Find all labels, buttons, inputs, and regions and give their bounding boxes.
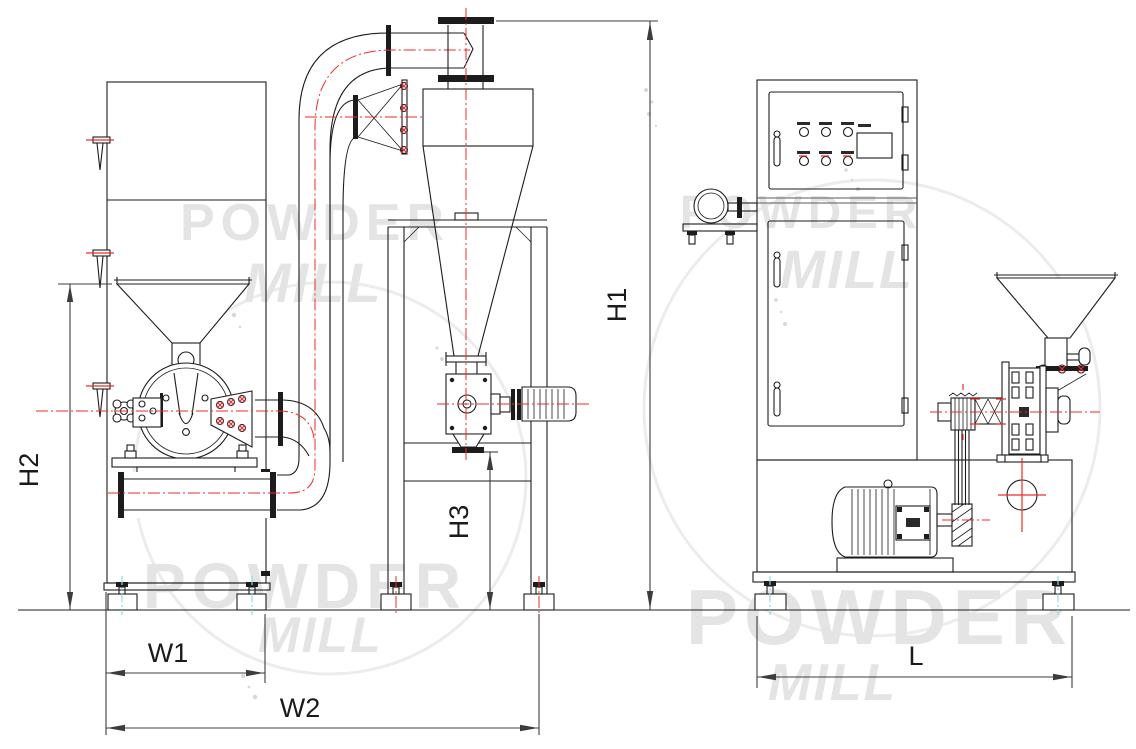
motor-plinth <box>837 558 953 572</box>
technical-drawing: POWDER MILL POWDER MILL POWDER MILL POWD… <box>0 0 1136 749</box>
clamp-flange <box>737 197 742 218</box>
feed-hopper-side <box>997 278 1115 338</box>
dimension-label-h3: H3 <box>444 505 474 540</box>
feed-chute <box>1045 338 1067 367</box>
dimension-label-h2: H2 <box>14 453 44 488</box>
flange <box>118 472 124 518</box>
door-cap <box>1058 396 1070 424</box>
grinding-head-section <box>1002 362 1070 458</box>
side-bolt <box>261 571 270 576</box>
discharge-channel <box>118 472 276 518</box>
flange <box>270 472 276 518</box>
dimension-label-w2: W2 <box>280 693 321 723</box>
frame-foot <box>524 576 554 615</box>
dimension-label-w1: W1 <box>148 638 189 668</box>
watermark-text: MILL <box>244 251 383 314</box>
feed-hopper <box>117 284 249 343</box>
motor-pulley <box>952 504 972 546</box>
slide-rails <box>112 458 257 467</box>
dimension-label-l: L <box>908 641 923 671</box>
hinge <box>902 398 908 413</box>
outlet-flange <box>452 447 484 453</box>
panel-door <box>769 92 903 189</box>
cyclone-assembly <box>381 8 590 615</box>
leveling-foot <box>108 576 137 615</box>
door-clamp-handle <box>86 137 114 170</box>
door-clamp-handle <box>86 383 114 417</box>
panel-button[interactable] <box>822 128 831 137</box>
panel-display <box>857 133 892 158</box>
panel-button[interactable] <box>800 128 809 137</box>
cyclone-cone <box>478 146 533 356</box>
nameplate <box>906 518 920 527</box>
watermark-text: MILL <box>258 607 383 663</box>
door-handle <box>774 382 780 416</box>
electric-motor <box>832 480 990 557</box>
valve-outlet <box>453 434 484 447</box>
spring-mount <box>237 445 248 458</box>
panel-button-label-marks <box>797 122 871 156</box>
panel-buttons <box>797 122 892 166</box>
panel-button[interactable] <box>844 128 853 137</box>
mill-pedestal <box>1005 455 1041 462</box>
dimension-label-h1: H1 <box>602 288 632 323</box>
panel-button[interactable] <box>844 157 853 166</box>
pipe-section <box>694 189 728 223</box>
watermark-text: MILL <box>768 654 897 712</box>
mill-door <box>1046 388 1058 432</box>
bearing-plate <box>133 398 161 427</box>
watermark-text: POWDER <box>686 573 1073 661</box>
watermark-text: MILL <box>780 240 914 300</box>
v-belt-drive <box>938 393 977 505</box>
door-clamp-handle <box>86 250 114 288</box>
panel-button[interactable] <box>800 157 809 166</box>
dimension-h2: H2 <box>14 284 112 610</box>
cyclone-body <box>423 89 533 146</box>
bearing-housing <box>970 398 1006 424</box>
adjust-knob <box>1067 348 1090 365</box>
drawing-canvas: POWDER MILL POWDER MILL POWDER MILL POWD… <box>0 0 1136 749</box>
spring-mount <box>125 445 136 458</box>
door-handle <box>774 131 780 166</box>
panel-button[interactable] <box>822 157 831 166</box>
